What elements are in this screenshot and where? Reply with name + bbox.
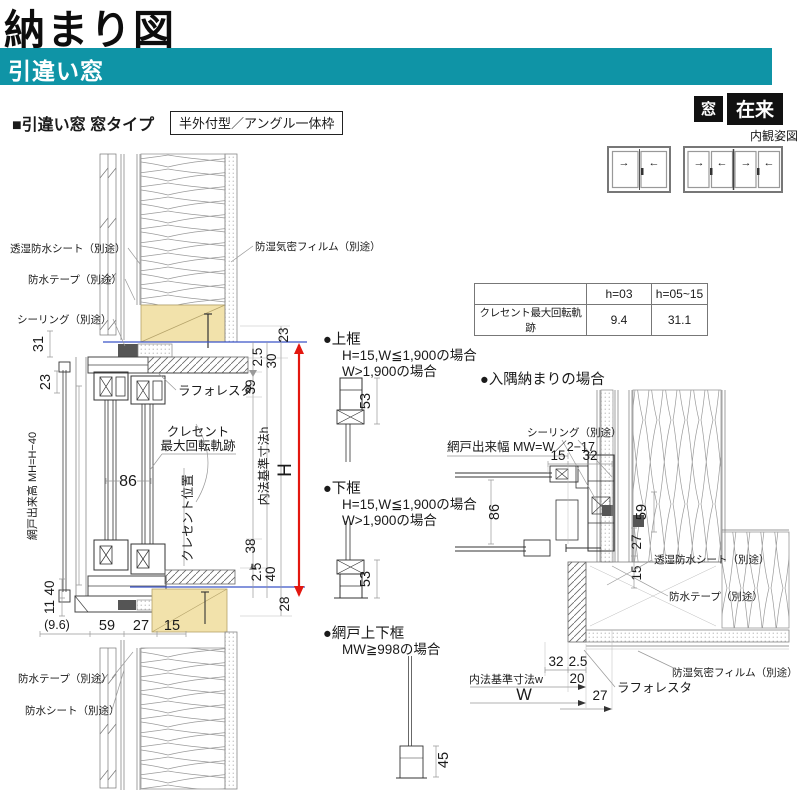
section-corner: ●入隅納まりの場合 — [480, 372, 605, 388]
table-header-row: h=03 h=05~15 — [475, 284, 708, 305]
dim-40: 40 — [263, 566, 278, 581]
dim-53: 53 — [358, 393, 374, 409]
dim-15: 15 — [629, 565, 644, 580]
dim-40: 40 — [42, 580, 57, 595]
dim-28: 28 — [277, 596, 292, 611]
dim-27: 27 — [629, 534, 644, 549]
crescent-position-label: クレセント位置 — [180, 474, 195, 562]
sealing-label: シーリング（別途） — [17, 313, 112, 326]
section-screen-rail: ●網戸上下框 MW≧998の場合 — [323, 626, 440, 658]
dim-30: 30 — [264, 353, 279, 368]
corner-window-frame — [455, 455, 644, 556]
table-header-h0515: h=05~15 — [652, 284, 708, 305]
slide-arrow-icon: ← — [717, 157, 728, 169]
waterproof-tape-label: 防水テープ（別途） — [669, 590, 763, 603]
dim-45: 45 — [436, 752, 452, 768]
dim-W: W — [516, 686, 532, 704]
moisture-sheet-label: 透湿防水シート（別途） — [10, 242, 126, 255]
table-row-label: クレセント最大回転軌跡 — [475, 305, 587, 336]
dim-2-5: 2.5 — [569, 654, 588, 669]
table-header-h03: h=03 — [587, 284, 652, 305]
section-corner-title: ●入隅納まりの場合 — [480, 372, 605, 388]
section-screen-rail-title: ●網戸上下框 — [323, 626, 440, 642]
dim-2-5: 2.5 — [249, 563, 264, 582]
moisture-sheet-label: 透湿防水シート（別途） — [654, 553, 770, 566]
slide-arrow-icon: → — [619, 157, 630, 169]
crescent-label-2: 最大回転軌跡 — [160, 438, 236, 453]
dim-32: 32 — [582, 448, 597, 463]
laforesta-label: ラフォレスタ — [617, 681, 692, 695]
teal-section-bar: 引違い窓 — [0, 48, 772, 85]
dim-86: 86 — [487, 504, 503, 520]
dim-59: 59 — [99, 618, 115, 634]
section-screen-rail-cond1: MW≧998の場合 — [342, 642, 440, 658]
dim-59: 59 — [634, 504, 650, 520]
section-top-rail-title: ●上框 — [323, 332, 477, 348]
waterproof-sheet-label: 防水シート（別途） — [25, 704, 120, 717]
dim-86: 86 — [119, 473, 137, 490]
crescent-table: h=03 h=05~15 クレセント最大回転軌跡 9.4 31.1 — [474, 283, 708, 336]
dim-2-5: 2.5 — [250, 348, 265, 367]
table-value-h03: 9.4 — [587, 305, 652, 336]
sealing-label: シーリング（別途） — [527, 426, 622, 439]
dim-53: 53 — [358, 571, 374, 587]
crescent-annotation: クレセント 最大回転軌跡 クレセント位置 — [150, 424, 236, 566]
screen-width-label: 網戸出来幅 MW=W／2−17 — [447, 439, 595, 454]
slide-arrow-icon: ← — [764, 157, 775, 169]
section-top-rail: ●上框 H=15,W≦1,900の場合 W>1,900の場合 — [323, 332, 477, 380]
table-header-empty — [475, 284, 587, 305]
dim-20: 20 — [569, 671, 584, 686]
laforesta-label: ラフォレスタ — [178, 384, 253, 398]
vapor-film-label: 防湿気密フィルム（別途） — [255, 240, 381, 253]
elevation-4panel-window: → ← → ← — [684, 147, 782, 192]
screen-height-label: 網戸出来高 MH=H−40 — [25, 432, 39, 540]
crescent-label-1: クレセント — [167, 425, 230, 439]
section-top-rail-cond1: H=15,W≦1,900の場合 — [342, 348, 477, 364]
badge-construction: 在来 — [727, 93, 783, 125]
inner-width-label: 内法基準寸法w — [469, 672, 543, 686]
waterproof-tape-label: 防水テープ（別途） — [18, 672, 112, 685]
section-bottom-rail-title: ●下框 — [323, 481, 477, 497]
sliding-sashes — [59, 357, 165, 612]
wall-section-bottom — [100, 632, 237, 790]
dim-9-6: (9.6) — [44, 618, 70, 632]
slide-arrow-icon: → — [694, 157, 705, 169]
slide-arrow-icon: ← — [649, 157, 660, 169]
dim-27: 27 — [592, 688, 607, 703]
dim-23: 23 — [276, 327, 291, 342]
dim-15: 15 — [550, 448, 565, 463]
section-bottom-rail-cond2: W>1,900の場合 — [342, 513, 477, 529]
dim-31: 31 — [31, 336, 47, 352]
table-row: クレセント最大回転軌跡 9.4 31.1 — [475, 305, 708, 336]
dim-15: 15 — [164, 618, 180, 634]
dim-11: 11 — [42, 600, 57, 614]
dim-27: 27 — [133, 618, 149, 634]
badge-window: 窓 — [694, 96, 723, 122]
top-rail-profile: 53 — [337, 378, 380, 462]
elevation-2panel-window: → ← — [608, 147, 670, 192]
waterproof-tape-label: 防水テープ（別途） — [28, 273, 122, 286]
elevation-caption: 内観姿図 — [0, 127, 798, 144]
slide-arrow-icon: → — [741, 157, 752, 169]
inner-height-label: 内法基準寸法h — [256, 427, 271, 506]
dim-32: 32 — [548, 654, 563, 669]
dim-23: 23 — [38, 374, 54, 390]
page: 納まり図 引違い窓 ■引違い窓 窓タイプ 半外付型／アングル一体枠 窓 在来 内… — [0, 0, 800, 800]
dim-H: H — [275, 463, 296, 477]
section-bottom-rail-cond1: H=15,W≦1,900の場合 — [342, 497, 477, 513]
section-bottom-rail: ●下框 H=15,W≦1,900の場合 W>1,900の場合 — [323, 481, 477, 529]
vapor-film-label: 防湿気密フィルム（別途） — [672, 666, 798, 679]
table-value-h0515: 31.1 — [652, 305, 708, 336]
screen-rail-profile: 45 — [396, 656, 452, 778]
teal-bar-label: 引違い窓 — [0, 48, 772, 86]
section-top-rail-cond2: W>1,900の場合 — [342, 364, 477, 380]
bottom-rail-profile: 53 — [334, 521, 380, 598]
dim-38: 38 — [243, 538, 258, 553]
